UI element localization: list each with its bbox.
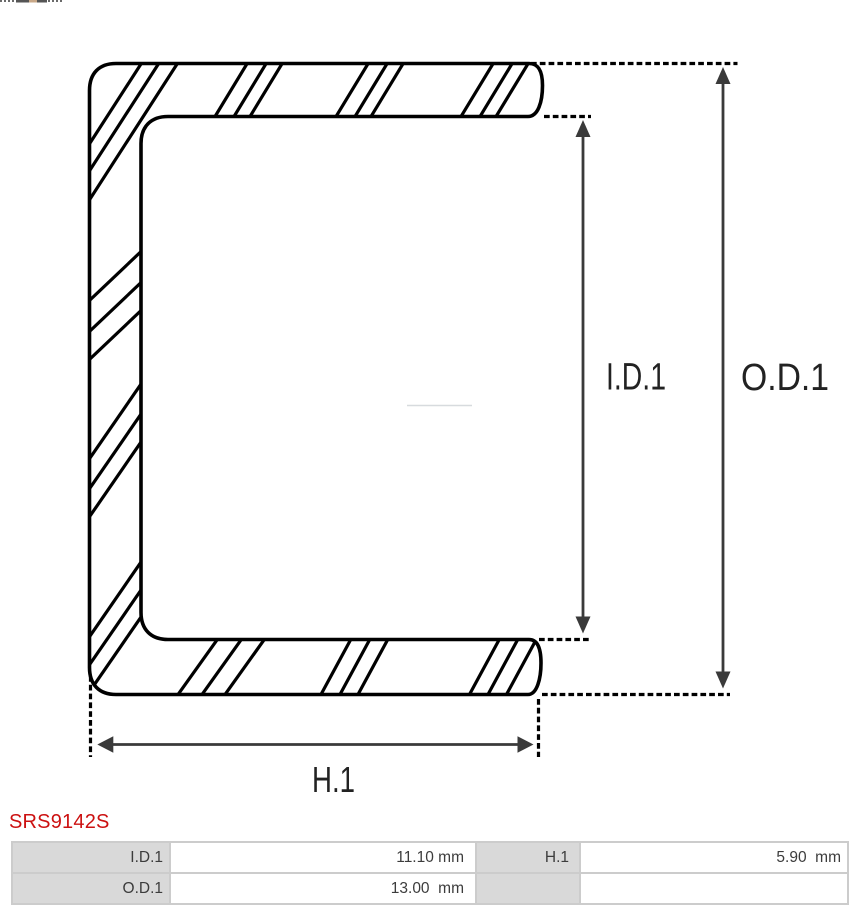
svg-text:I.D.1: I.D.1 — [606, 357, 666, 399]
svg-text:H.1: H.1 — [312, 759, 355, 800]
svg-text:O.D.1: O.D.1 — [741, 357, 829, 399]
